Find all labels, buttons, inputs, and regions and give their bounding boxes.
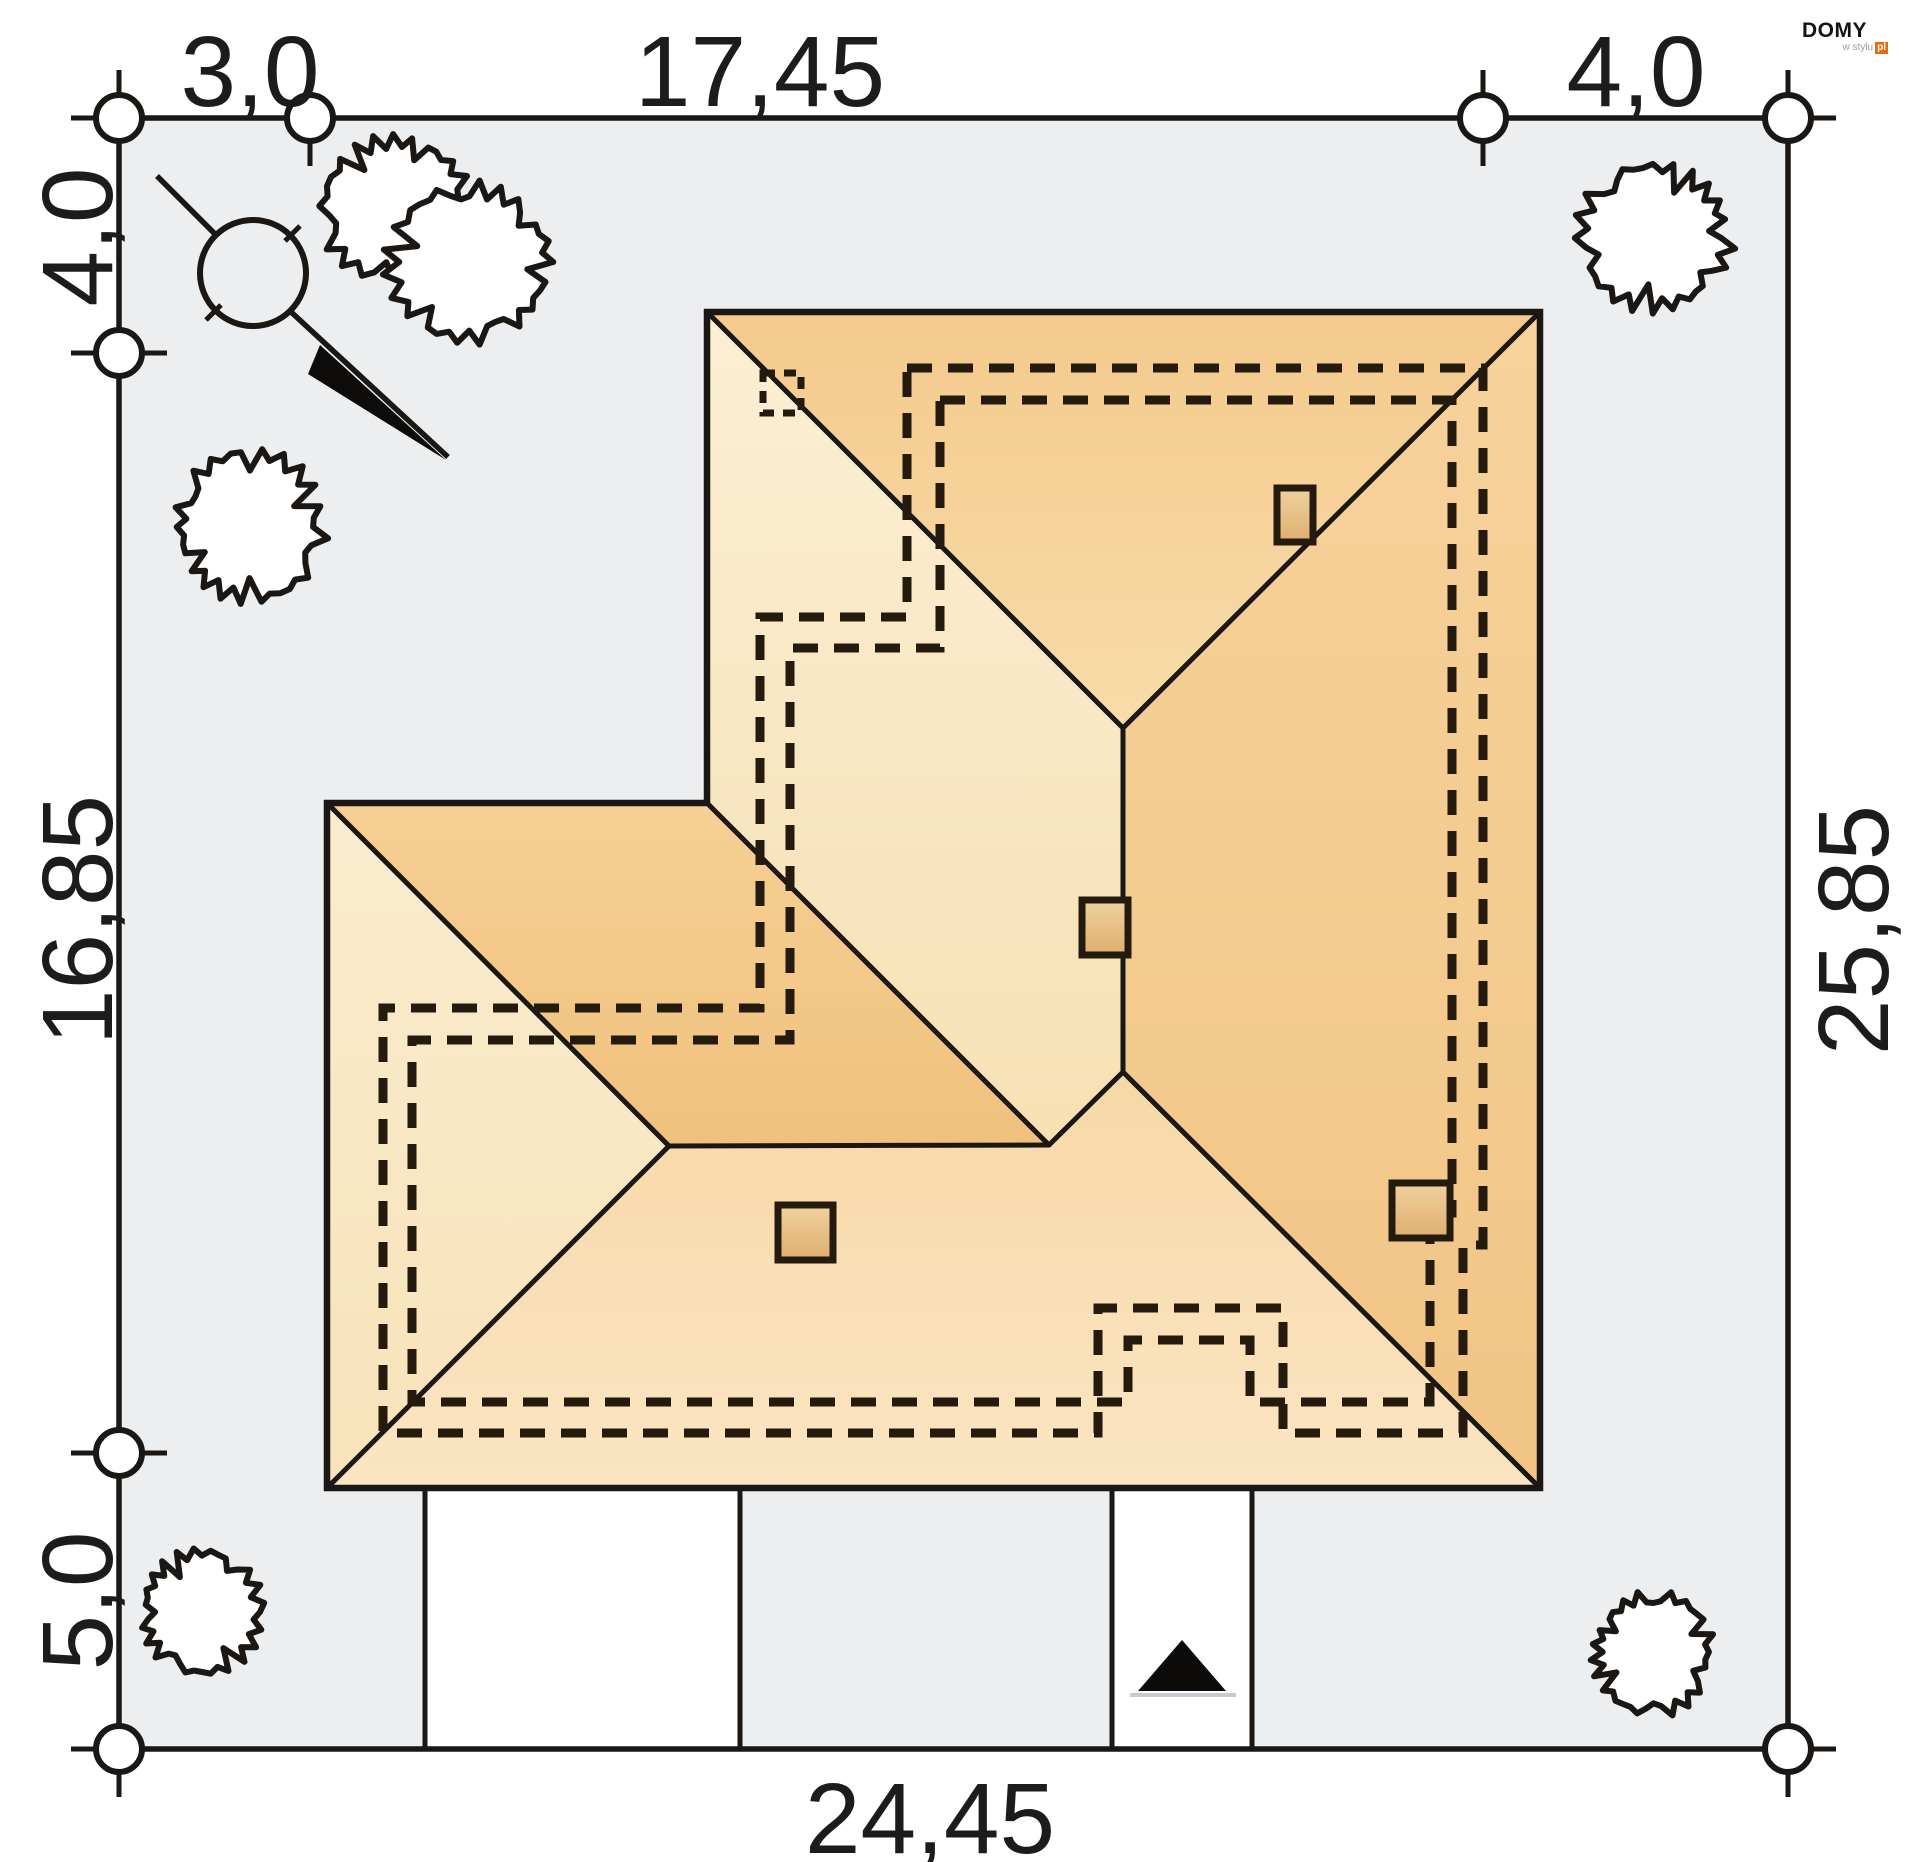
dim-left-top: 4,0 bbox=[22, 167, 134, 306]
brand-tagline: w stylu bbox=[1843, 43, 1874, 53]
driveway bbox=[424, 1489, 740, 1749]
brand-logo: DOMY w stylu pl bbox=[1802, 20, 1888, 54]
dim-top-right: 4,0 bbox=[1566, 16, 1705, 128]
brand-suffix-badge: pl bbox=[1875, 42, 1888, 54]
site-plan-page: 3,0 17,45 4,0 4,0 16,85 5,0 25,85 24,45 … bbox=[0, 0, 1920, 1862]
entrance-path bbox=[1112, 1489, 1253, 1749]
chimney bbox=[1392, 1183, 1450, 1238]
site-plan-drawing: 3,0 17,45 4,0 4,0 16,85 5,0 25,85 24,45 bbox=[0, 0, 1920, 1862]
dim-top-middle: 17,45 bbox=[635, 16, 885, 128]
tree-icon bbox=[142, 1549, 264, 1674]
chimney bbox=[1277, 488, 1313, 542]
dim-top-left: 3,0 bbox=[180, 16, 319, 128]
dim-left-middle: 16,85 bbox=[22, 795, 134, 1045]
dim-right-side: 25,85 bbox=[1798, 805, 1910, 1055]
chimney bbox=[1082, 900, 1128, 955]
chimney bbox=[778, 1205, 833, 1260]
brand-name: DOMY bbox=[1802, 20, 1888, 41]
dim-left-bottom: 5,0 bbox=[22, 1531, 134, 1670]
dim-bottom: 24,45 bbox=[805, 1763, 1055, 1862]
